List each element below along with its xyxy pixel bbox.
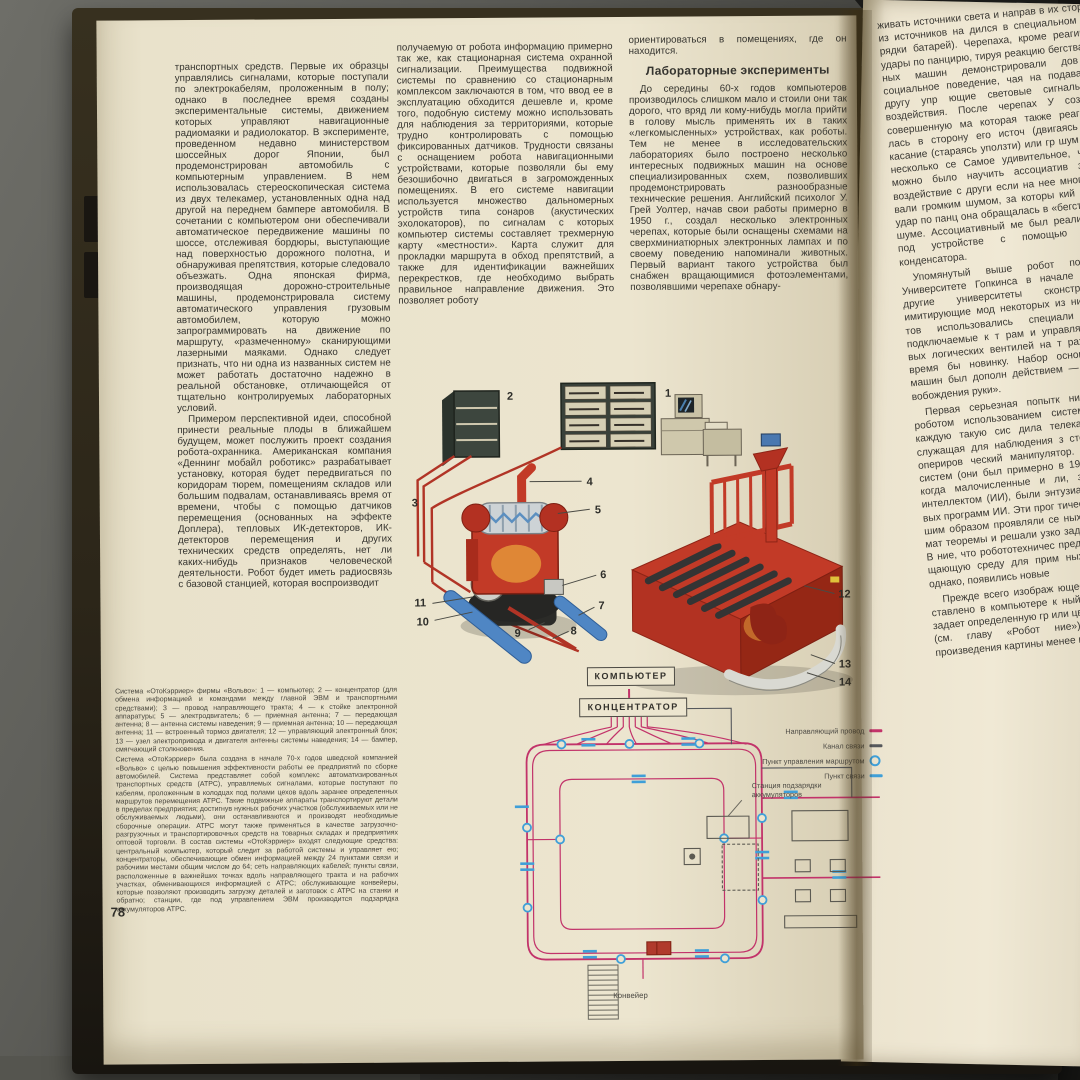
engine-agv — [440, 467, 609, 667]
book-gutter-shadow — [838, 10, 872, 1066]
charging-station-label: Станция подзарядки аккумуляторов — [752, 781, 844, 799]
station-leader-line — [728, 800, 742, 816]
paragraph: ориентироваться в помещениях, где он нах… — [628, 33, 846, 57]
callout-6: 6 — [600, 569, 606, 581]
shelf-unit — [442, 391, 500, 466]
callout-5: 5 — [595, 504, 601, 516]
photo-of-open-book: живать источники света и направ в их сто… — [0, 0, 1080, 1080]
right-page-text: живать источники света и направ в их сто… — [877, 0, 1080, 663]
column-2: получаемую от робота информацию примерно… — [397, 41, 615, 398]
computer-box: КОМПЬЮТЕР — [587, 667, 675, 687]
caption-body: Система «ОтоКэрриер» была создана в нача… — [116, 755, 399, 915]
section-heading: Лабораторные эксперименты — [629, 64, 847, 77]
rear-rack — [711, 466, 792, 543]
comms-channel-symbol — [869, 744, 889, 747]
paragraph: Первая серьезная попытк нить компьютер с… — [913, 384, 1080, 591]
guide-wire-symbol — [869, 729, 889, 732]
figure-caption: Система «ОтоКэрриер» фирмы «Вольво»: 1 —… — [115, 687, 399, 959]
left-page: транспортных средств. Первые их образцы … — [96, 15, 863, 1064]
station-symbols — [684, 810, 857, 928]
callout-7: 7 — [598, 600, 604, 612]
paragraph: живать источники света и направ в их сто… — [877, 0, 1080, 270]
route-point-symbol — [870, 755, 890, 766]
callout-4: 4 — [587, 476, 594, 488]
computer-desk — [661, 394, 742, 467]
callout-9: 9 — [515, 628, 521, 640]
drawer-cabinet — [561, 383, 655, 450]
concentrator-box: КОНЦЕНТРАТОР — [579, 698, 687, 718]
column-3: ориентироваться в помещениях, где он нах… — [628, 33, 848, 377]
comms-point-symbol — [870, 774, 890, 777]
paragraph: транспортных средств. Первые их образцы … — [175, 61, 391, 414]
conveyor-label: Конвейер — [613, 992, 648, 1001]
column-1: транспортных средств. Первые их образцы … — [175, 61, 393, 684]
agv-vehicle-marker — [647, 942, 671, 955]
paragraph: Упомянутый выше робот построенный в Унив… — [900, 249, 1080, 404]
callout-10: 10 — [417, 616, 429, 628]
callout-3: 3 — [412, 497, 418, 509]
page-number: 78 — [111, 904, 126, 919]
paragraph: получаемую от робота информацию примерно… — [397, 41, 615, 307]
callout-2: 2 — [507, 391, 513, 403]
callout-1: 1 — [665, 388, 671, 400]
caption-key: Система «ОтоКэрриер» фирмы «Вольво»: 1 —… — [115, 687, 397, 755]
paragraph: Примером перспективной идеи, способной п… — [177, 413, 392, 590]
paragraph: До середины 60-х годов компьютеров произ… — [629, 82, 848, 293]
callout-11: 11 — [414, 597, 426, 609]
callout-8: 8 — [571, 625, 577, 637]
